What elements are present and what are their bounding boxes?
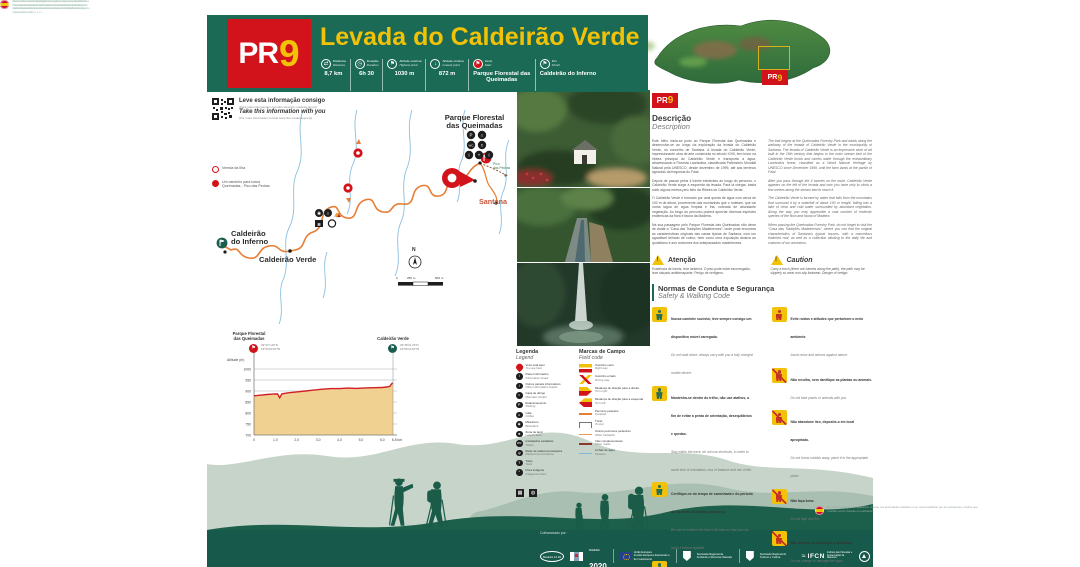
stat-value: 872 m bbox=[430, 71, 463, 77]
safety-rules-right: Evite ruídos e atitudes que perturbem o … bbox=[772, 307, 874, 567]
legend-item: T TáxisTaxis bbox=[516, 460, 576, 467]
fieldcode-item: Linhas de águaStreams bbox=[579, 449, 649, 456]
warning-icon bbox=[771, 255, 783, 265]
legend-item: i Outros painéis informativosOther infor… bbox=[516, 383, 576, 390]
partner-logos: Madeira 14·20 MADEIRA2020 União Europeia… bbox=[540, 538, 870, 567]
page-title: Levada do Caldeirão Verde bbox=[320, 23, 640, 52]
stat-icon: ⚑ bbox=[387, 59, 397, 69]
fieldcode-symbol bbox=[579, 387, 592, 396]
svg-text:750: 750 bbox=[245, 422, 251, 426]
svg-text:i: i bbox=[489, 153, 490, 158]
fieldcode-item: TúnelTunnel bbox=[579, 420, 649, 428]
description-pr9-badge: PR9 bbox=[652, 93, 678, 108]
prociv-logo bbox=[859, 551, 870, 562]
legend-item-icon: P bbox=[516, 402, 523, 409]
svg-text:2,0: 2,0 bbox=[294, 438, 299, 442]
svg-text:3,0: 3,0 bbox=[316, 438, 321, 442]
svg-text:6,5 km: 6,5 km bbox=[392, 438, 402, 442]
qr-text-en: Take this information with you bbox=[239, 109, 325, 116]
fieldcode-items: Caminho certoRight way Caminho erradoWro… bbox=[579, 364, 649, 457]
legend-title-en: Legend bbox=[516, 355, 576, 361]
svg-text:+: + bbox=[478, 153, 481, 158]
caution-title-pt: Atenção bbox=[668, 257, 696, 264]
scale-label-250: 250 m bbox=[407, 276, 415, 280]
svg-text:5,0: 5,0 bbox=[359, 438, 364, 442]
stat-label-en: Distance bbox=[333, 63, 345, 67]
legend-item: * Flora indígenaIndigenous flora bbox=[516, 469, 576, 476]
scale-bar bbox=[398, 282, 443, 286]
stat-label-en: Start bbox=[485, 63, 492, 67]
caution-text-pt: Existência de túneis, leve lanterna. O p… bbox=[652, 267, 755, 276]
extra-es-disclaimer: En conformidad con la legislación vigent… bbox=[815, 506, 987, 515]
map-label-caldeirao-inferno: Caldeirãodo Inferno bbox=[231, 230, 268, 246]
svg-text:WC: WC bbox=[469, 144, 475, 148]
elevation-chart: 100095090085080075070001,02,03,04,05,06,… bbox=[225, 332, 417, 446]
amenity-icons-queimadas: P ⌂ WC c i + i bbox=[465, 131, 493, 159]
spain-flag-icon bbox=[815, 506, 824, 515]
legend-item: P EstacionamentoParking bbox=[516, 402, 576, 409]
safety-rule-icon bbox=[772, 307, 787, 322]
fieldcode-item: Percurso pedestreFootpath bbox=[579, 410, 649, 417]
legend-item-icon: ♣ bbox=[516, 431, 523, 438]
fieldcode-symbol bbox=[579, 364, 592, 373]
field-code-section: Marcas de Campo Field code Caminho certo… bbox=[579, 349, 649, 456]
qr-text-pt: Leve esta informação consigo bbox=[239, 98, 325, 105]
regional-government-crest bbox=[683, 551, 691, 561]
legend-item: ♣ Zona de lazerLeisure area bbox=[516, 431, 576, 438]
madeira-14-20-logo: Madeira 14·20 bbox=[540, 551, 564, 562]
map-legend-vereda: Vereda da Ilha bbox=[212, 166, 245, 173]
trail-stat: ⚑ InícioStart Parque Florestal das Queim… bbox=[468, 59, 535, 91]
qr-info-block: Leve esta informação consigo (Para mais … bbox=[212, 98, 325, 120]
fieldcode-title-en: Field code bbox=[579, 355, 649, 361]
sra-logo-text: Secretaria Regional de Ambiente e Recurs… bbox=[697, 553, 733, 559]
srtc-logo-text: Secretaria Regional do Turismo e Cultura bbox=[760, 553, 796, 559]
legend-item-icon bbox=[515, 362, 524, 371]
caution-text-en: Carry a torch (there are tunnels along t… bbox=[771, 267, 874, 276]
map-label-santana: Santana bbox=[479, 198, 507, 206]
map-label-queimadas: Parque Florestaldas Queimadas bbox=[442, 114, 507, 130]
stat-icon: ◷ bbox=[355, 59, 365, 69]
photo-levada-channel bbox=[517, 188, 650, 262]
ifcn-logo: ≈IFCNInstituto das Florestas e Conservaç… bbox=[802, 552, 853, 561]
safety-rule-icon bbox=[652, 482, 667, 497]
map-legend-caminho: Um caminho para todosQueimadas - Pico da… bbox=[212, 180, 270, 189]
fieldcode-symbol bbox=[579, 398, 592, 407]
legend-item: ⌂ Casa de abrigoMountain shelter bbox=[516, 392, 576, 399]
safety-rule: Não abandone lixo, deposite-o em local a… bbox=[772, 410, 874, 482]
fieldcode-symbol bbox=[579, 375, 592, 384]
fieldcode-symbol bbox=[579, 422, 592, 428]
scale-label-0: 0 bbox=[396, 276, 398, 280]
language-flag-icon bbox=[0, 0, 9, 9]
scale-label-500: 500 m bbox=[435, 276, 443, 280]
svg-text:1000: 1000 bbox=[243, 367, 251, 371]
description-text-pt: Este trilho inicia-se junto ao Parque Fl… bbox=[652, 139, 756, 250]
trail-stat: ↓ Altitude mínimaLowest point 872 m bbox=[425, 59, 467, 91]
stat-label-en: Duration bbox=[367, 63, 379, 67]
trail-stat: ⚑ Altitude máximaHighest point 1030 m bbox=[382, 59, 425, 91]
island-pr-prefix: PR bbox=[768, 74, 778, 81]
caution-title-en: Caution bbox=[787, 257, 813, 264]
safety-rule-icon bbox=[772, 368, 787, 383]
eu-funds-logo: União EuropeiaFundos Europeus Estruturai… bbox=[620, 551, 670, 561]
stat-value: Caldeirão do Inferno bbox=[540, 71, 596, 77]
fieldcode-item: Caminho certoRight way bbox=[579, 364, 649, 373]
svg-text:⌂: ⌂ bbox=[327, 211, 330, 216]
regional-government-crest-2 bbox=[746, 551, 754, 561]
description-paragraph-en: After you pass through the 4 tunnels on … bbox=[768, 179, 872, 193]
pr-number: 9 bbox=[279, 33, 300, 75]
stat-icon: ⚑ bbox=[473, 59, 483, 69]
warning-icon bbox=[652, 255, 664, 265]
island-pr9-badge: PR9 bbox=[762, 70, 788, 85]
stat-icon: ⚑ bbox=[540, 59, 550, 69]
photo-waterfall bbox=[517, 263, 650, 346]
island-pr-number: 9 bbox=[777, 73, 782, 83]
svg-text:6,0: 6,0 bbox=[380, 438, 385, 442]
red-dot-icon bbox=[212, 180, 219, 187]
safety-rule: Mantenha-se dentro do trilho, não use at… bbox=[652, 386, 754, 476]
svg-text:850: 850 bbox=[245, 400, 251, 404]
compass-north-label: N bbox=[412, 248, 416, 253]
pr-prefix: PR bbox=[238, 37, 278, 71]
legend-item: i Painel informativoInformation board bbox=[516, 373, 576, 380]
legend-item-icon: i bbox=[516, 383, 523, 390]
legend-items: Você está aquiYou are here i Painel info… bbox=[516, 364, 576, 477]
madeira-island-map: PR9 bbox=[645, 6, 845, 96]
legend-item: ◉ MiradouroBelvedere bbox=[516, 421, 576, 428]
stat-icon: ⇄ bbox=[321, 59, 331, 69]
legend-item-icon: * bbox=[516, 469, 523, 476]
heritage-icon: ▦ bbox=[516, 489, 524, 497]
legend-section: Legenda Legend Você está aquiYou are her… bbox=[516, 349, 576, 499]
description-paragraph-pt: Este trilho inicia-se junto ao Parque Fl… bbox=[652, 139, 756, 175]
svg-text:700: 700 bbox=[245, 433, 251, 437]
svg-text:800: 800 bbox=[245, 411, 251, 415]
safety-rule-icon bbox=[772, 489, 787, 504]
trail-information-board: PR9 Levada do Caldeirão Verde ⇄ Distânci… bbox=[0, 0, 1080, 567]
qr-sub-en: (For more information consult www.ifcn.m… bbox=[239, 116, 325, 120]
fieldcode-item: Mudança de direção para a direitaTurn ri… bbox=[579, 387, 649, 396]
stat-value: 1030 m bbox=[387, 71, 421, 77]
safety-rule-icon bbox=[772, 410, 787, 425]
svg-text:P: P bbox=[470, 133, 473, 138]
legend-item-icon: i bbox=[516, 373, 523, 380]
stat-label-en: Highest point bbox=[399, 63, 417, 67]
fieldcode-symbol bbox=[579, 434, 592, 435]
svg-text:4,0: 4,0 bbox=[337, 438, 342, 442]
stat-label-en: Finish bbox=[552, 63, 560, 67]
trail-location-box bbox=[758, 46, 790, 70]
description-paragraph-pt: Na sua passagem pelo Parque Florestal da… bbox=[652, 223, 756, 246]
safety-rule: Não recolha, nem danifique as plantas ou… bbox=[772, 368, 874, 404]
description-paragraph-en: The Caldeirão Verde is formed by water t… bbox=[768, 196, 872, 219]
description-paragraph-pt: O Caldeirão Verde é formado por uma qued… bbox=[652, 196, 756, 219]
amenity-icons-midtrail: ◉ ⌂ ⛺ ▦ bbox=[315, 209, 342, 227]
safety-rule: Nunca caminhe sozinho; leve sempre consi… bbox=[652, 307, 754, 379]
trail-map: P ⌂ WC c i + i ◉ ⌂ ⛺ ▦ bbox=[207, 110, 515, 334]
safety-title-en: Safety & Walking Code bbox=[658, 293, 873, 302]
stat-label-en: Lowest point bbox=[442, 63, 459, 67]
safety-title-pt: Normas de Conduta e Segurança bbox=[658, 284, 873, 293]
legend-item-icon: c bbox=[516, 412, 523, 419]
header-bar: PR9 Levada do Caldeirão Verde ⇄ Distânci… bbox=[207, 15, 648, 92]
map-label-caldeirao-verde: Caldeirão Verde bbox=[259, 256, 316, 264]
biogenetic-reserve-icon: ◍ bbox=[529, 489, 537, 497]
legend-item-icon: ψ bbox=[516, 450, 523, 457]
safety-rules-left: Nunca caminhe sozinho; leve sempre consi… bbox=[652, 307, 754, 567]
fieldcode-symbol bbox=[579, 453, 592, 455]
fieldcode-symbol bbox=[579, 443, 592, 445]
safety-rule-icon bbox=[652, 386, 667, 401]
photo-forest-house bbox=[517, 90, 650, 187]
legend-item-icon: ◉ bbox=[516, 421, 523, 428]
svg-text:i: i bbox=[469, 153, 470, 158]
description-paragraph-en: When passing the Queimadas Forestry Park… bbox=[768, 223, 872, 246]
red-ring-icon bbox=[212, 166, 219, 173]
legend-item: wc Instalações sanitáriasToilets bbox=[516, 440, 576, 447]
qr-code bbox=[212, 98, 234, 120]
svg-text:▦: ▦ bbox=[317, 222, 320, 226]
fieldcode-item: Outros percursos pedestresOther footpath… bbox=[579, 430, 649, 437]
svg-text:900: 900 bbox=[245, 389, 251, 393]
compass-icon bbox=[409, 256, 421, 268]
eu-flag-icon bbox=[620, 552, 632, 561]
description-column: PR9 Descrição Description Este trilho in… bbox=[652, 93, 873, 567]
pr9-badge: PR9 bbox=[227, 19, 311, 88]
safety-rule-icon bbox=[652, 307, 667, 322]
legend-item: Você está aquiYou are here bbox=[516, 364, 576, 371]
stat-icon: ↓ bbox=[430, 59, 440, 69]
fieldcode-symbol bbox=[579, 413, 592, 415]
svg-text:950: 950 bbox=[245, 378, 251, 382]
legend-item-icon: wc bbox=[516, 440, 523, 447]
description-text-en: The trail begins at the Queimadas Forest… bbox=[768, 139, 872, 250]
elevation-profile: Parque Florestaldas Queimadas ⚑ 32°47'1.… bbox=[225, 332, 417, 454]
legend-item: c CaféCoffee bbox=[516, 412, 576, 419]
trail-stats: ⇄ DistânciaDistance 8,7 km ◷ DuraçãoDura… bbox=[317, 59, 600, 91]
svg-text:⌂: ⌂ bbox=[481, 133, 484, 138]
trail-map-drawing: P ⌂ WC c i + i ◉ ⌂ ⛺ ▦ bbox=[207, 110, 515, 334]
trail-stat: ⇄ DistânciaDistance 8,7 km bbox=[317, 59, 350, 91]
legend-item-icon: T bbox=[516, 460, 523, 467]
description-paragraph-pt: Depois de passar pelos 4 túneis existent… bbox=[652, 179, 756, 193]
stat-value: 8,7 km bbox=[321, 71, 346, 77]
stat-value: Parque Florestal das Queimadas bbox=[473, 71, 531, 84]
footer-disclaimer: En conformidad con la legislación vigent… bbox=[0, 0, 92, 14]
svg-text:1,0: 1,0 bbox=[273, 438, 278, 442]
map-label-pico-das-pedras: Picodas Pedras bbox=[493, 162, 510, 170]
island-terrain bbox=[645, 6, 845, 96]
fieldcode-item: Caminho erradoWrong way bbox=[579, 375, 649, 384]
svg-text:◉: ◉ bbox=[317, 211, 321, 216]
description-title-en: Description bbox=[652, 123, 873, 132]
map-finish-marker bbox=[217, 238, 228, 254]
legend-item-icon: ⌂ bbox=[516, 392, 523, 399]
safety-rule: Evite ruídos e atitudes que perturbem o … bbox=[772, 307, 874, 361]
madeira-flag-logo bbox=[570, 552, 583, 561]
stat-value: 6h 30 bbox=[355, 71, 379, 77]
fieldcode-item: Vias complementaresOther roads bbox=[579, 440, 649, 447]
svg-text:⛺: ⛺ bbox=[334, 212, 342, 218]
description-paragraph-en: The trail begins at the Queimadas Forest… bbox=[768, 139, 872, 175]
svg-text:0: 0 bbox=[253, 438, 255, 442]
fieldcode-item: Mudança de direção para a esquerdaTurn l… bbox=[579, 398, 649, 407]
trail-stat: ⚑ FimFinish Caldeirão do Inferno bbox=[535, 59, 600, 91]
legend-item: ψ Rede de radiocomunicaçõesRadiocommunic… bbox=[516, 450, 576, 457]
trail-stat: ◷ DuraçãoDuration 6h 30 bbox=[350, 59, 383, 91]
cofinanced-label: Cofinanciado por: bbox=[540, 531, 567, 535]
photo-column bbox=[517, 90, 650, 347]
madeira-2020-logo: MADEIRA2020 bbox=[589, 538, 607, 567]
